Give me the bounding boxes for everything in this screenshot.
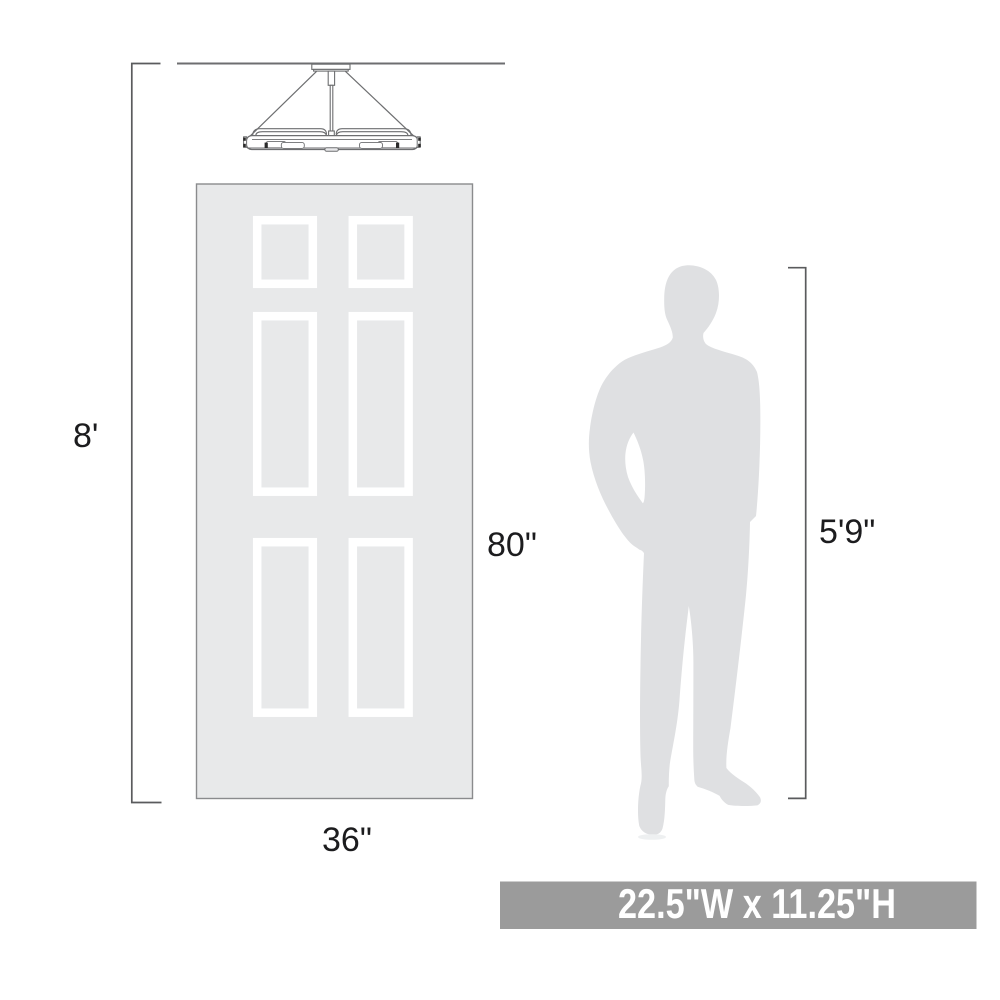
svg-text:22.5"W x 11.25"H: 22.5"W x 11.25"H [618, 880, 896, 927]
svg-text:36": 36" [322, 821, 372, 859]
svg-text:8': 8' [73, 417, 98, 455]
svg-text:80": 80" [487, 526, 537, 564]
svg-text:5'9": 5'9" [819, 513, 875, 551]
